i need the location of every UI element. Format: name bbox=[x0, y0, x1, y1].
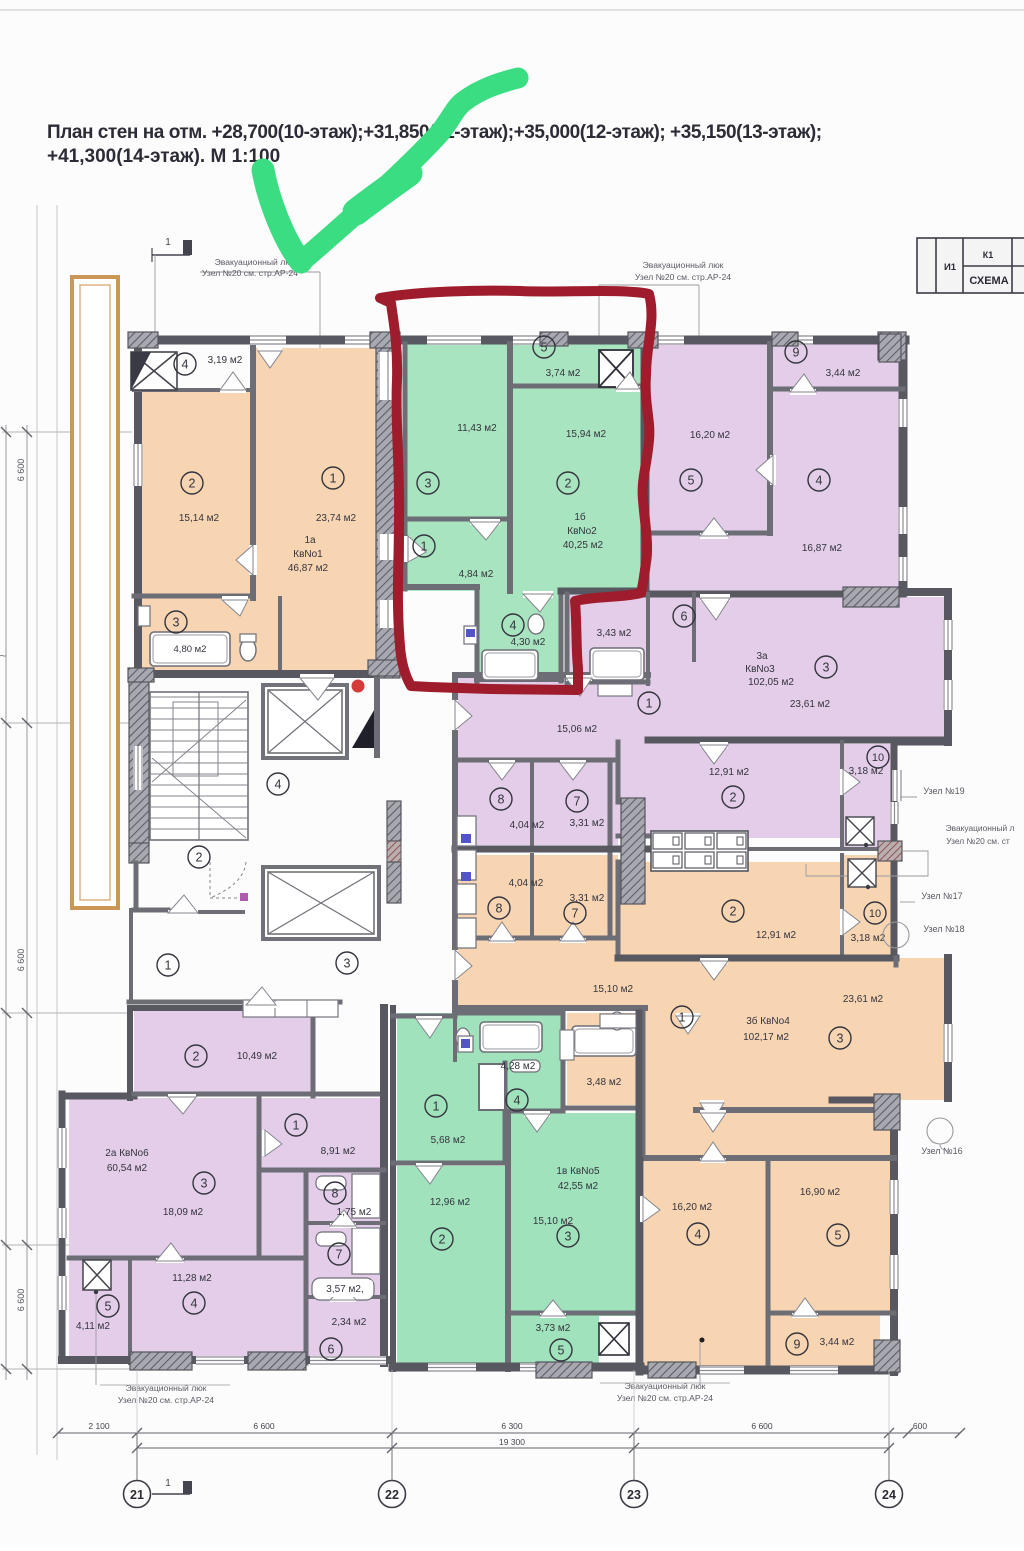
svg-text:42,55 м2: 42,55 м2 bbox=[558, 1181, 599, 1192]
svg-text:4: 4 bbox=[182, 357, 189, 371]
svg-text:6: 6 bbox=[681, 609, 688, 623]
svg-text:6 600: 6 600 bbox=[751, 1421, 773, 1431]
svg-text:КвNo2: КвNo2 bbox=[567, 526, 597, 537]
svg-text:15,14 м2: 15,14 м2 bbox=[179, 513, 220, 524]
svg-text:3,18 м2: 3,18 м2 bbox=[849, 766, 884, 777]
svg-text:1: 1 bbox=[165, 237, 171, 248]
svg-text:+41,300(14-этаж). М 1:100: +41,300(14-этаж). М 1:100 bbox=[47, 146, 280, 167]
svg-text:2: 2 bbox=[730, 904, 737, 918]
svg-text:23: 23 bbox=[627, 1488, 641, 1502]
svg-text:9: 9 bbox=[793, 345, 800, 359]
svg-text:4: 4 bbox=[191, 1296, 198, 1310]
svg-text:1: 1 bbox=[293, 1118, 300, 1132]
svg-text:15,10 м2: 15,10 м2 bbox=[593, 984, 634, 995]
svg-text:8,91 м2: 8,91 м2 bbox=[321, 1146, 356, 1157]
svg-text:3а: 3а bbox=[756, 651, 768, 662]
svg-text:24: 24 bbox=[882, 1488, 896, 1502]
svg-text:Узел №19: Узел №19 bbox=[923, 786, 964, 796]
svg-text:102,05 м2: 102,05 м2 bbox=[748, 677, 794, 688]
svg-text:3: 3 bbox=[823, 660, 830, 674]
svg-text:11,43 м2: 11,43 м2 bbox=[457, 423, 497, 434]
svg-text:3: 3 bbox=[425, 476, 432, 490]
svg-text:5: 5 bbox=[558, 1343, 565, 1357]
svg-text:60,54 м2: 60,54 м2 bbox=[107, 1163, 148, 1174]
svg-text:2а КвNo6: 2а КвNo6 bbox=[105, 1148, 149, 1159]
svg-text:23,61 м2: 23,61 м2 bbox=[843, 994, 884, 1005]
svg-text:5: 5 bbox=[835, 1228, 842, 1242]
svg-text:3: 3 bbox=[565, 1229, 572, 1243]
svg-text:3,31 м2: 3,31 м2 bbox=[570, 893, 605, 904]
svg-text:2 100: 2 100 bbox=[88, 1421, 110, 1431]
svg-text:12,91 м2: 12,91 м2 bbox=[756, 930, 797, 941]
svg-text:Узел №20 см. стр.АР-24: Узел №20 см. стр.АР-24 bbox=[635, 272, 731, 282]
svg-text:600: 600 bbox=[913, 1421, 927, 1431]
svg-text:1б: 1б bbox=[574, 511, 586, 523]
svg-text:4: 4 bbox=[816, 473, 823, 487]
svg-text:2: 2 bbox=[196, 850, 203, 864]
svg-text:16,20 м2: 16,20 м2 bbox=[672, 1202, 713, 1213]
svg-text:Узел №20 см. стр.АР-24: Узел №20 см. стр.АР-24 bbox=[118, 1395, 214, 1405]
svg-text:Узел №20 см. ст: Узел №20 см. ст bbox=[946, 836, 1010, 846]
svg-text:23,74 м2: 23,74 м2 bbox=[316, 513, 357, 524]
svg-text:16,90 м2: 16,90 м2 bbox=[800, 1187, 841, 1198]
svg-text:18,09 м2: 18,09 м2 bbox=[163, 1207, 204, 1218]
svg-text:Эвакуационный люк: Эвакуационный люк bbox=[625, 1381, 706, 1391]
svg-text:2,34 м2: 2,34 м2 bbox=[332, 1317, 367, 1328]
svg-text:102,17 м2: 102,17 м2 bbox=[743, 1032, 789, 1043]
svg-text:3,44 м2: 3,44 м2 bbox=[826, 368, 861, 379]
svg-text:3б КвNo4: 3б КвNo4 bbox=[746, 1015, 790, 1027]
svg-text:5: 5 bbox=[105, 1299, 112, 1313]
svg-text:8: 8 bbox=[332, 1186, 339, 1200]
svg-text:Эвакуационный л: Эвакуационный л bbox=[946, 823, 1015, 833]
svg-text:К1: К1 bbox=[983, 250, 994, 260]
svg-text:10: 10 bbox=[869, 908, 881, 920]
svg-text:1в КвNo5: 1в КвNo5 bbox=[556, 1166, 600, 1177]
svg-text:21: 21 bbox=[130, 1488, 144, 1502]
svg-text:1: 1 bbox=[330, 471, 337, 485]
svg-text:1: 1 bbox=[646, 696, 653, 710]
svg-text:46,87 м2: 46,87 м2 bbox=[288, 563, 329, 574]
svg-text:8: 8 bbox=[498, 792, 505, 806]
svg-text:6 600: 6 600 bbox=[16, 949, 26, 972]
svg-text:6 600: 6 600 bbox=[253, 1421, 275, 1431]
svg-text:3,73 м2: 3,73 м2 bbox=[536, 1323, 571, 1334]
svg-text:4: 4 bbox=[275, 777, 282, 791]
svg-text:4,84 м2: 4,84 м2 bbox=[459, 569, 494, 580]
svg-text:4,80 м2: 4,80 м2 bbox=[174, 644, 207, 655]
svg-text:10,49 м2: 10,49 м2 bbox=[237, 1051, 278, 1062]
svg-text:1а: 1а bbox=[304, 535, 316, 546]
svg-text:3,31 м2: 3,31 м2 bbox=[570, 818, 605, 829]
svg-text:19 300: 19 300 bbox=[499, 1437, 525, 1447]
svg-text:4: 4 bbox=[514, 1093, 521, 1107]
svg-text:3: 3 bbox=[837, 1031, 844, 1045]
svg-text:3: 3 bbox=[173, 615, 180, 629]
svg-text:И1: И1 bbox=[944, 262, 957, 273]
svg-text:СХЕМА: СХЕМА bbox=[969, 275, 1008, 287]
svg-text:4,04 м2: 4,04 м2 bbox=[510, 820, 545, 831]
svg-text:1: 1 bbox=[165, 1478, 171, 1489]
svg-text:2: 2 bbox=[193, 1049, 200, 1063]
svg-text:11,28 м2: 11,28 м2 bbox=[172, 1273, 212, 1284]
svg-text:16,87 м2: 16,87 м2 bbox=[802, 543, 843, 554]
svg-text:2: 2 bbox=[189, 476, 196, 490]
svg-text:4,11 м2: 4,11 м2 bbox=[76, 1321, 110, 1332]
svg-text:5: 5 bbox=[541, 340, 548, 354]
svg-text:Узел №18: Узел №18 bbox=[923, 924, 964, 934]
svg-text:4: 4 bbox=[695, 1227, 702, 1241]
svg-text:9: 9 bbox=[794, 1337, 801, 1351]
svg-text:2: 2 bbox=[565, 476, 572, 490]
svg-text:3,44 м2: 3,44 м2 bbox=[820, 1337, 855, 1348]
svg-text:6: 6 bbox=[328, 1342, 335, 1356]
svg-text:Узел №16: Узел №16 bbox=[921, 1146, 962, 1156]
svg-text:12,91 м2: 12,91 м2 bbox=[709, 767, 750, 778]
svg-text:5: 5 bbox=[688, 473, 695, 487]
svg-text:3: 3 bbox=[344, 956, 351, 970]
svg-text:Узел №20 см. стр.АР-24: Узел №20 см. стр.АР-24 bbox=[202, 268, 298, 278]
svg-text:7: 7 bbox=[572, 906, 579, 920]
svg-text:КвNo1: КвNo1 bbox=[293, 549, 323, 560]
svg-text:7: 7 bbox=[574, 794, 581, 808]
svg-text:3,57 м2,: 3,57 м2, bbox=[326, 1284, 363, 1295]
svg-text:~: ~ bbox=[0, 649, 7, 663]
svg-text:8: 8 bbox=[496, 901, 503, 915]
svg-text:6 300: 6 300 bbox=[501, 1421, 523, 1431]
svg-text:40,25 м2: 40,25 м2 bbox=[563, 540, 604, 551]
svg-text:15,94 м2: 15,94 м2 bbox=[566, 429, 607, 440]
svg-text:4,28 м2: 4,28 м2 bbox=[501, 1061, 536, 1072]
svg-text:1: 1 bbox=[165, 958, 172, 972]
svg-text:15,10 м2: 15,10 м2 bbox=[533, 1216, 574, 1227]
svg-text:3,74 м2: 3,74 м2 bbox=[546, 368, 581, 379]
svg-text:Узел №17: Узел №17 bbox=[921, 891, 962, 901]
svg-text:12,96 м2: 12,96 м2 bbox=[430, 1197, 471, 1208]
svg-text:10: 10 bbox=[872, 752, 884, 764]
svg-text:Узел №20 см. стр.АР-24: Узел №20 см. стр.АР-24 bbox=[617, 1393, 713, 1403]
svg-text:Эвакуационный люк: Эвакуационный люк bbox=[126, 1383, 207, 1393]
svg-text:4: 4 bbox=[510, 618, 517, 632]
svg-text:3,18 м2: 3,18 м2 bbox=[851, 933, 886, 944]
svg-text:23,61 м2: 23,61 м2 bbox=[790, 699, 831, 710]
svg-text:3,43 м2: 3,43 м2 bbox=[597, 628, 632, 639]
svg-text:16,20 м2: 16,20 м2 bbox=[690, 430, 731, 441]
svg-text:4,04 м2: 4,04 м2 bbox=[509, 878, 544, 889]
svg-text:1,75 м2: 1,75 м2 bbox=[337, 1207, 372, 1218]
svg-text:1: 1 bbox=[433, 1099, 440, 1113]
svg-text:6 600: 6 600 bbox=[16, 1289, 26, 1312]
svg-text:3,48 м2: 3,48 м2 bbox=[587, 1077, 622, 1088]
svg-text:5,68 м2: 5,68 м2 bbox=[431, 1135, 466, 1146]
svg-text:Эвакуационный люк: Эвакуационный люк bbox=[643, 260, 724, 270]
svg-text:КвNo3: КвNo3 bbox=[745, 664, 775, 675]
svg-text:2: 2 bbox=[730, 790, 737, 804]
svg-text:6 600: 6 600 bbox=[16, 459, 26, 482]
svg-text:3: 3 bbox=[201, 1176, 208, 1190]
svg-text:2: 2 bbox=[439, 1232, 446, 1246]
svg-text:22: 22 bbox=[385, 1488, 399, 1502]
svg-text:Эвакуационный люк: Эвакуационный люк bbox=[215, 257, 296, 267]
svg-text:1: 1 bbox=[679, 1010, 686, 1024]
svg-text:7: 7 bbox=[336, 1247, 343, 1261]
svg-text:3,19 м2: 3,19 м2 bbox=[208, 355, 243, 366]
svg-text:1: 1 bbox=[421, 539, 428, 553]
svg-text:15,06 м2: 15,06 м2 bbox=[557, 724, 598, 735]
svg-text:4,30 м2: 4,30 м2 bbox=[511, 637, 546, 648]
